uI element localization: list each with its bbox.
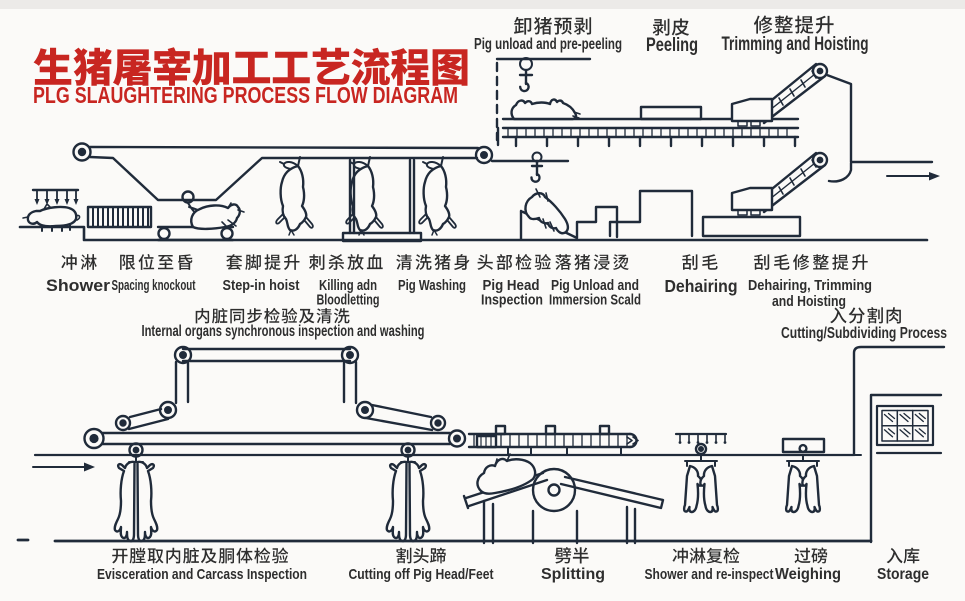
svg-text:Internal organs synchronous in: Internal organs synchronous inspection a… [142,323,425,340]
svg-text:Trimming and Hoisting: Trimming and Hoisting [722,34,869,55]
svg-text:Shower: Shower [46,276,110,295]
svg-text:Pig unload and pre-peeling: Pig unload and pre-peeling [474,36,622,53]
svg-text:and Hoisting: and Hoisting [772,294,846,310]
svg-text:Dehairing, Trimming: Dehairing, Trimming [748,278,872,294]
svg-text:Spacing knockout: Spacing knockout [112,278,196,294]
svg-text:Peeling: Peeling [646,35,698,56]
svg-text:Inspection: Inspection [481,293,543,309]
svg-text:Immersion Scald: Immersion Scald [549,293,641,309]
svg-text:Shower and re-inspect: Shower and re-inspect [645,566,774,583]
svg-text:Evisceration and Carcass Inspe: Evisceration and Carcass Inspection [97,566,307,583]
svg-text:PLG SLAUGHTERING PROCESS FLOW: PLG SLAUGHTERING PROCESS FLOW DIAGRAM [33,82,458,108]
svg-text:Step-in hoist: Step-in hoist [223,278,300,294]
svg-text:Storage: Storage [877,566,929,583]
svg-text:Splitting: Splitting [541,566,605,583]
svg-text:Dehairing: Dehairing [665,276,738,296]
svg-text:Pig Washing: Pig Washing [398,278,466,294]
svg-text:Weighing: Weighing [775,566,841,583]
svg-text:Cutting/Subdividing Process: Cutting/Subdividing Process [781,325,947,342]
svg-text:Bloodletting: Bloodletting [317,293,380,309]
svg-text:Cutting off Pig Head/Feet: Cutting off Pig Head/Feet [349,566,494,583]
